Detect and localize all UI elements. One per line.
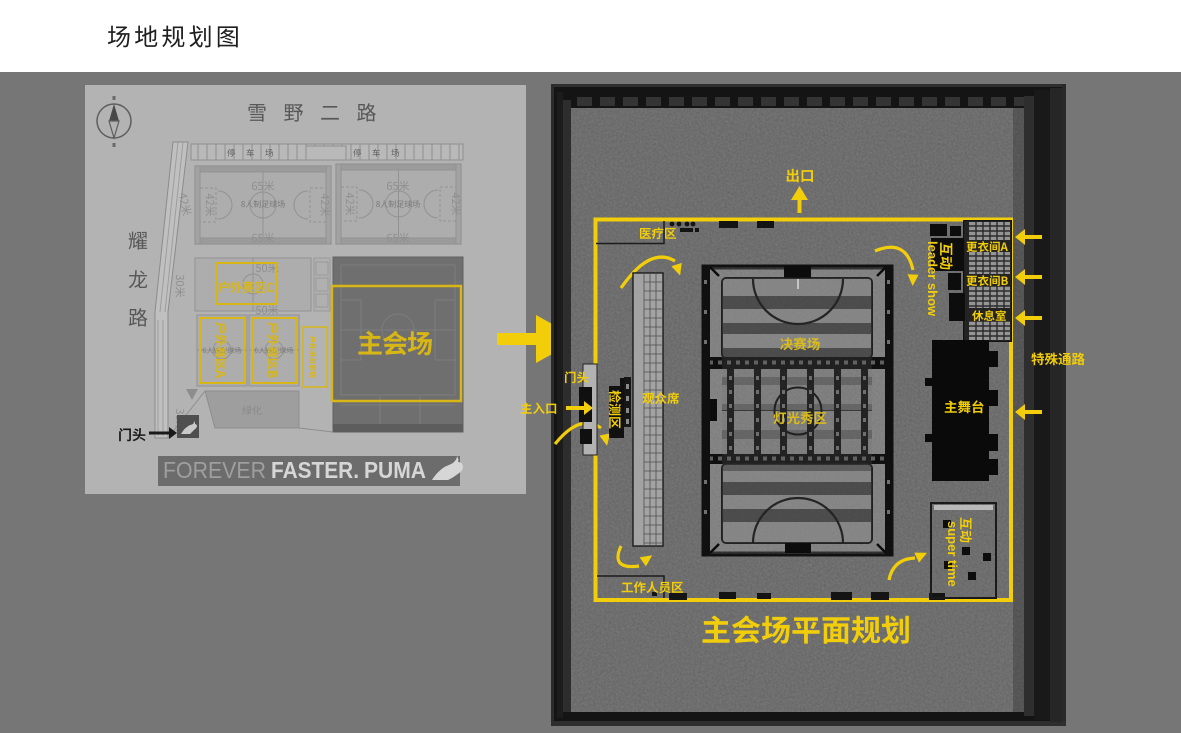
- svg-text:leader show: leader show: [925, 241, 940, 317]
- svg-text:PUMA: PUMA: [364, 457, 426, 483]
- svg-text:super time: super time: [945, 521, 960, 587]
- svg-text:FOREVER: FOREVER: [163, 457, 266, 483]
- svg-text:FASTER.: FASTER.: [271, 457, 359, 483]
